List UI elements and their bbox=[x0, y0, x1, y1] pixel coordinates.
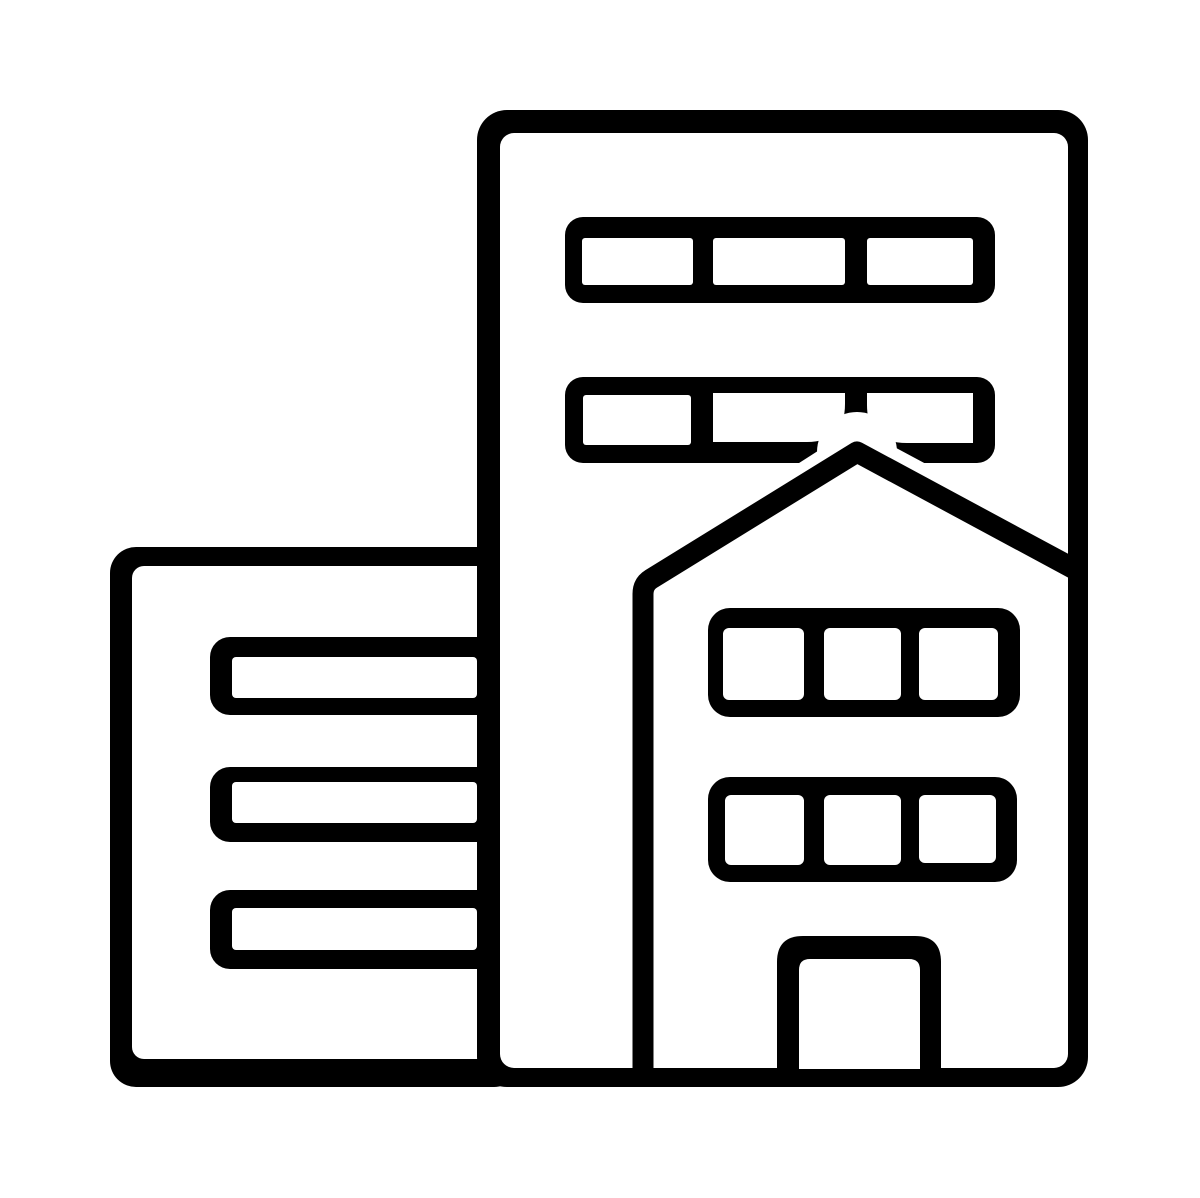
second-window-band-glass-1 bbox=[583, 395, 691, 445]
top-window-band-glass-1 bbox=[582, 238, 693, 285]
tower-window-lower-glass-1 bbox=[725, 795, 804, 865]
left-window-bar-3-glass bbox=[232, 908, 477, 950]
left-window-bar-1-glass bbox=[232, 657, 477, 698]
tower-window-lower-glass-2 bbox=[824, 795, 901, 865]
tower-window-lower-glass-3 bbox=[919, 795, 996, 863]
city-buildings-icon bbox=[0, 0, 1200, 1198]
door-opening bbox=[799, 959, 920, 1069]
tower-window-upper-glass-1 bbox=[723, 628, 804, 700]
tower-window-upper-glass-3 bbox=[919, 628, 998, 700]
icon-canvas bbox=[0, 0, 1200, 1198]
left-window-bar-2-glass bbox=[232, 782, 477, 823]
top-window-band-glass-2 bbox=[713, 238, 845, 285]
top-window-band-glass-3 bbox=[867, 238, 973, 285]
tower-window-upper-glass-2 bbox=[824, 628, 901, 700]
